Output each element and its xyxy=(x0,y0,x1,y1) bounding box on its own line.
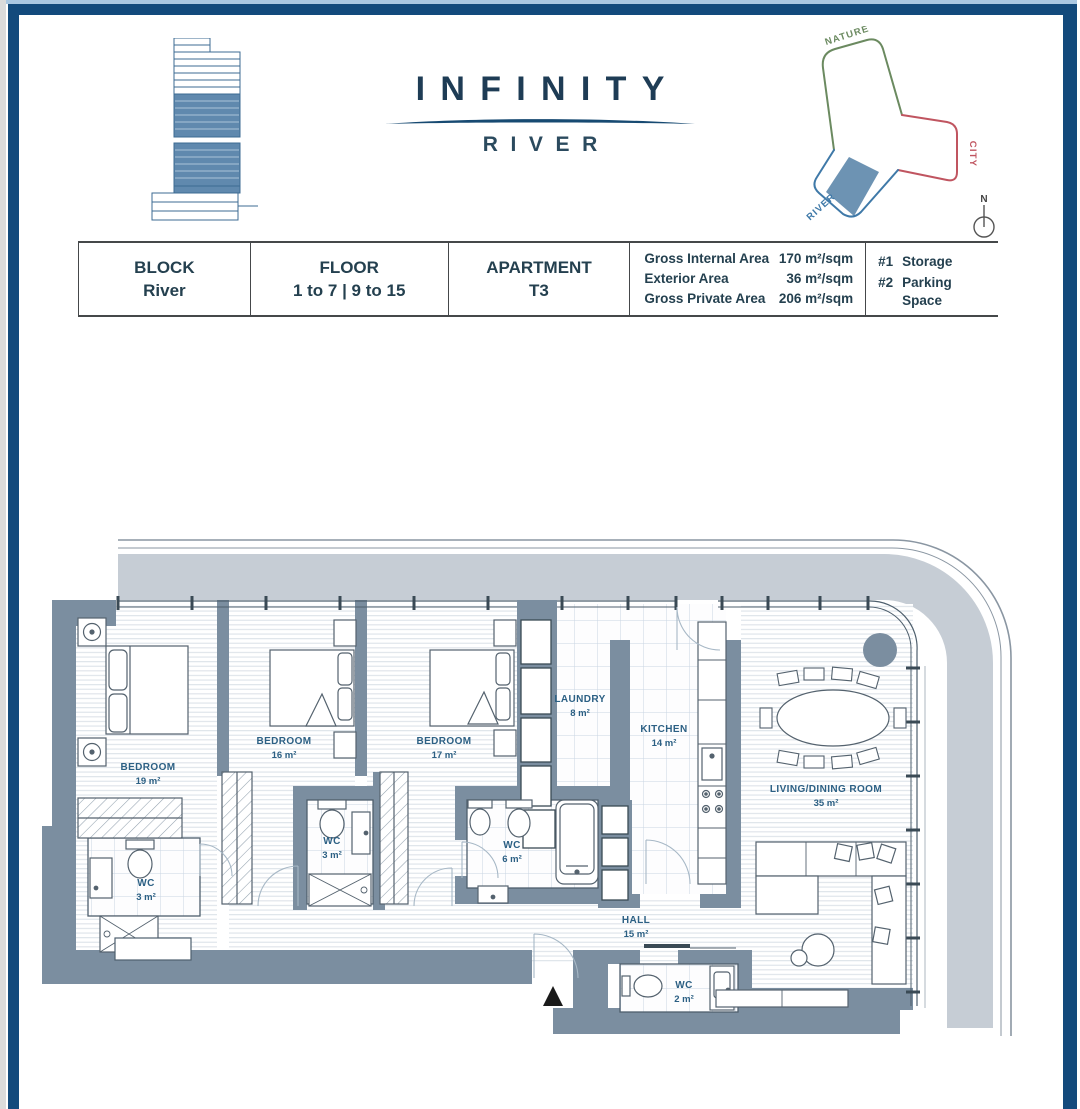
room-label: WC xyxy=(137,878,154,889)
area-value: 170 m²/sqm xyxy=(779,250,853,268)
extras-cell: #1 Storage #2 Parking Space xyxy=(866,243,998,315)
city-label: CITY xyxy=(967,141,978,167)
room-label: WC xyxy=(323,836,340,847)
area-label: Gross Internal Area xyxy=(644,250,769,268)
logo-swoosh xyxy=(385,117,695,127)
block-cell: BLOCK River xyxy=(79,243,251,315)
site-plan: NATURE CITY RIVER N xyxy=(788,26,1008,238)
room-label: WC xyxy=(503,840,520,851)
floor-plan: BEDROOM 19 m² BEDROOM 16 m² BEDROOM 17 m… xyxy=(0,520,1080,1109)
area-value: 36 m²/sqm xyxy=(786,270,853,288)
north-indicator: N xyxy=(974,194,994,237)
floor-value: 1 to 7 | 9 to 15 xyxy=(293,281,405,301)
extra-label: Parking Space xyxy=(902,274,994,310)
block-value: River xyxy=(143,281,186,301)
room-area: 6 m² xyxy=(502,854,522,865)
dining-table xyxy=(777,690,889,746)
apartment-cell: APARTMENT T3 xyxy=(449,243,631,315)
room-label: BEDROOM xyxy=(416,736,471,747)
block-label: BLOCK xyxy=(134,258,194,278)
kitchen-counter xyxy=(698,622,726,884)
north-label: N xyxy=(980,194,987,205)
room-area: 2 m² xyxy=(674,994,694,1005)
bottom-wall-niche xyxy=(115,938,191,960)
apartment-label: APARTMENT xyxy=(486,258,591,278)
area-row: Gross Internal Area 170 m²/sqm xyxy=(644,250,853,268)
extra-row: #2 Parking Space xyxy=(878,274,994,310)
room-area: 14 m² xyxy=(652,738,677,749)
extra-row: #1 Storage xyxy=(878,253,994,271)
extra-num: #2 xyxy=(878,274,893,310)
floor-cell: FLOOR 1 to 7 | 9 to 15 xyxy=(251,243,449,315)
brochure-page: INFINITY RIVER NATURE CITY RIVER N BLOCK… xyxy=(0,0,1080,1109)
area-label: Gross Private Area xyxy=(644,290,765,308)
city-wing-outline xyxy=(898,115,957,180)
room-area: 17 m² xyxy=(432,750,457,761)
area-row: Gross Private Area 206 m²/sqm xyxy=(644,290,853,308)
room-area: 3 m² xyxy=(136,892,156,903)
area-label: Exterior Area xyxy=(644,270,728,288)
nature-wing-outline xyxy=(823,39,902,150)
column xyxy=(863,633,897,667)
apartment-value: T3 xyxy=(529,281,549,301)
room-area: 15 m² xyxy=(624,929,649,940)
room-area: 16 m² xyxy=(272,750,297,761)
room-label: LAUNDRY xyxy=(554,694,605,705)
entrance-marker xyxy=(543,986,563,1006)
room-area: 35 m² xyxy=(814,798,839,809)
room-label: LIVING/DINING ROOM xyxy=(770,784,882,795)
room-label: WC xyxy=(675,980,692,991)
logo-title: INFINITY xyxy=(345,70,750,109)
side-table xyxy=(791,950,807,966)
info-table: BLOCK River FLOOR 1 to 7 | 9 to 15 APART… xyxy=(78,241,998,317)
room-label: BEDROOM xyxy=(256,736,311,747)
room-area: 3 m² xyxy=(322,850,342,861)
project-logo: INFINITY RIVER xyxy=(330,70,750,157)
floor-label: FLOOR xyxy=(319,258,379,278)
area-row: Exterior Area 36 m²/sqm xyxy=(644,270,853,288)
area-value: 206 m²/sqm xyxy=(779,290,853,308)
extra-num: #1 xyxy=(878,253,893,271)
logo-subtitle: RIVER xyxy=(343,133,750,157)
room-area: 8 m² xyxy=(570,708,590,719)
room-area: 19 m² xyxy=(136,776,161,787)
room-label: BEDROOM xyxy=(120,762,175,773)
room-label: KITCHEN xyxy=(640,724,687,735)
room-label: HALL xyxy=(622,915,650,926)
building-icon xyxy=(150,38,260,230)
extra-label: Storage xyxy=(902,253,952,271)
areas-cell: Gross Internal Area 170 m²/sqm Exterior … xyxy=(630,243,866,315)
